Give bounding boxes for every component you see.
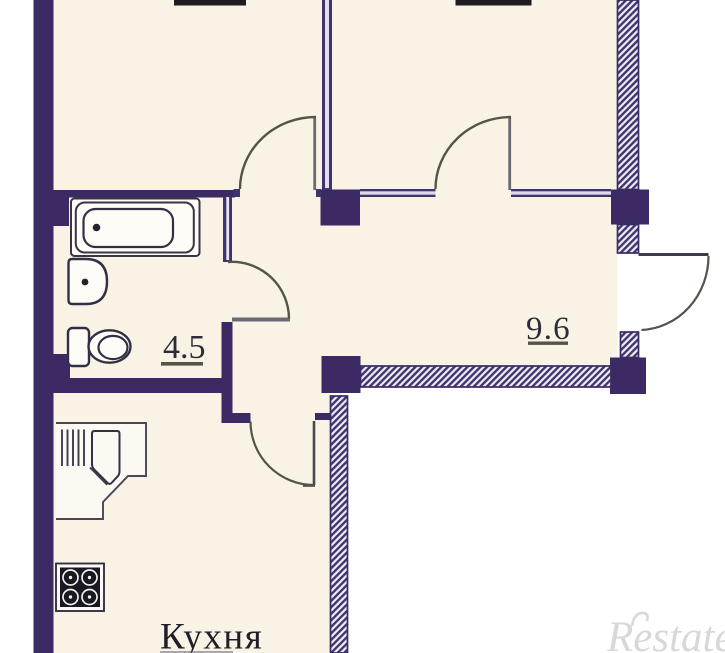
svg-text:Кухня: Кухня [160,617,263,653]
svg-text:Restate: Restate [606,614,725,653]
svg-text:4.5: 4.5 [163,329,206,366]
